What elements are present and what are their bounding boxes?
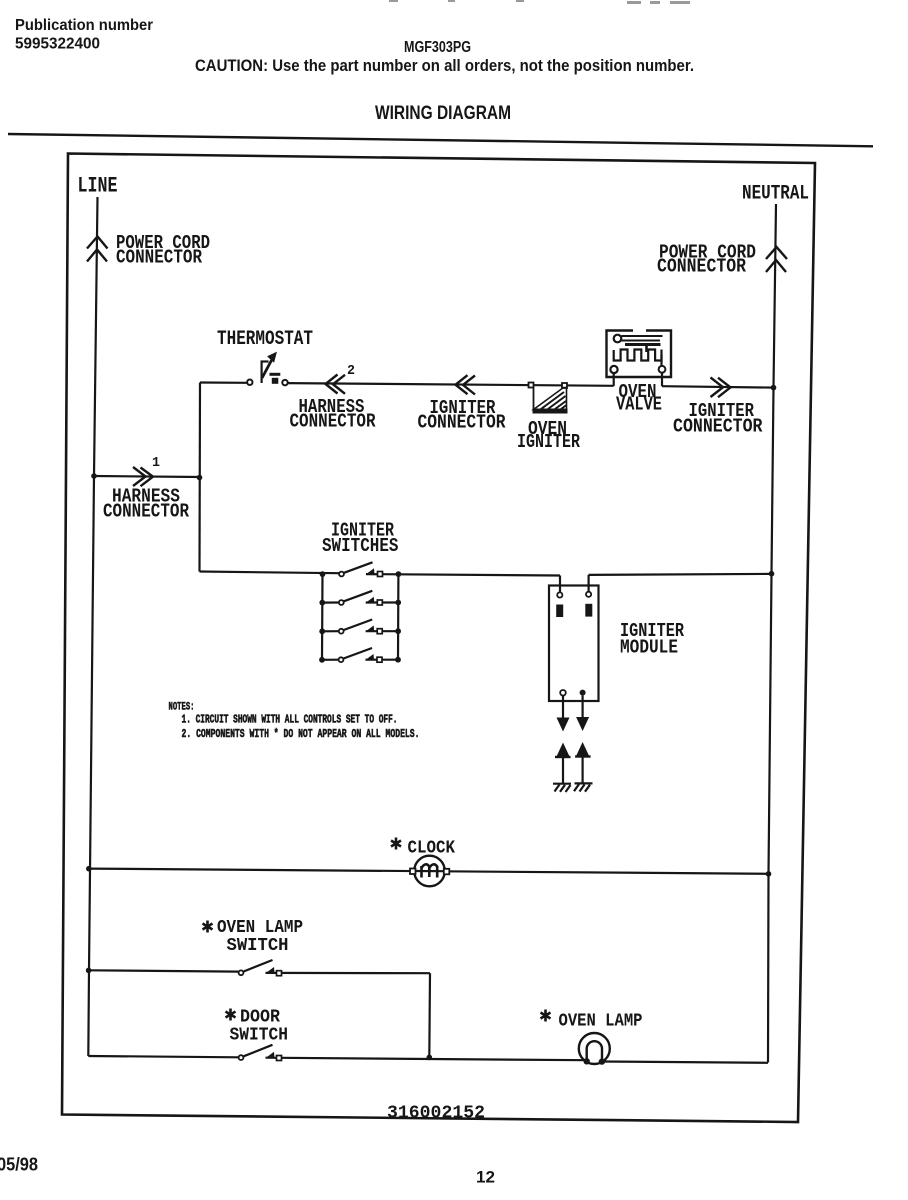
svg-text:CLOCK: CLOCK xyxy=(408,839,456,859)
svg-text:CONNECTOR: CONNECTOR xyxy=(418,412,507,434)
svg-text:MODULE: MODULE xyxy=(620,637,678,659)
svg-text:1: 1 xyxy=(152,455,160,471)
svg-text:DOOR: DOOR xyxy=(240,1008,280,1028)
svg-text:CONNECTOR: CONNECTOR xyxy=(673,416,763,438)
svg-text:CAUTION: Use the part number: CAUTION: Use the part number on all orde… xyxy=(195,56,694,75)
svg-text:Publication number: Publication number xyxy=(15,17,153,34)
svg-text:NEUTRAL: NEUTRAL xyxy=(742,183,809,206)
svg-text:LINE: LINE xyxy=(78,174,118,199)
svg-text:OVEN LAMP: OVEN LAMP xyxy=(217,918,303,938)
svg-text:2. COMPONENTS WITH * DO NOT AP: 2. COMPONENTS WITH * DO NOT APPEAR ON AL… xyxy=(182,727,420,741)
svg-text:SWITCH: SWITCH xyxy=(230,1026,289,1046)
svg-text:CONNECTOR: CONNECTOR xyxy=(103,501,189,523)
svg-text:CONNECTOR: CONNECTOR xyxy=(116,247,202,269)
svg-text:MGF303PG: MGF303PG xyxy=(404,39,471,56)
svg-text:WIRING DIAGRAM: WIRING DIAGRAM xyxy=(375,103,511,124)
svg-text:SWITCHES: SWITCHES xyxy=(322,535,399,557)
svg-text:VALVE: VALVE xyxy=(616,394,662,416)
svg-text:IGNITER: IGNITER xyxy=(517,431,580,453)
svg-text:5995322400: 5995322400 xyxy=(15,36,100,53)
svg-text:2: 2 xyxy=(347,363,355,379)
svg-text:316002152: 316002152 xyxy=(387,1104,485,1124)
svg-text:CONNECTOR: CONNECTOR xyxy=(657,256,747,278)
svg-text:1. CIRCUIT SHOWN WITH ALL CONT: 1. CIRCUIT SHOWN WITH ALL CONTROLS SET T… xyxy=(182,713,398,727)
svg-text:OVEN LAMP: OVEN LAMP xyxy=(559,1012,643,1032)
svg-text:THERMOSTAT: THERMOSTAT xyxy=(217,328,313,351)
svg-text:05/98: 05/98 xyxy=(0,1155,38,1175)
svg-text:12: 12 xyxy=(476,1168,495,1187)
svg-text:CONNECTOR: CONNECTOR xyxy=(290,411,376,433)
svg-text:SWITCH: SWITCH xyxy=(227,936,289,956)
